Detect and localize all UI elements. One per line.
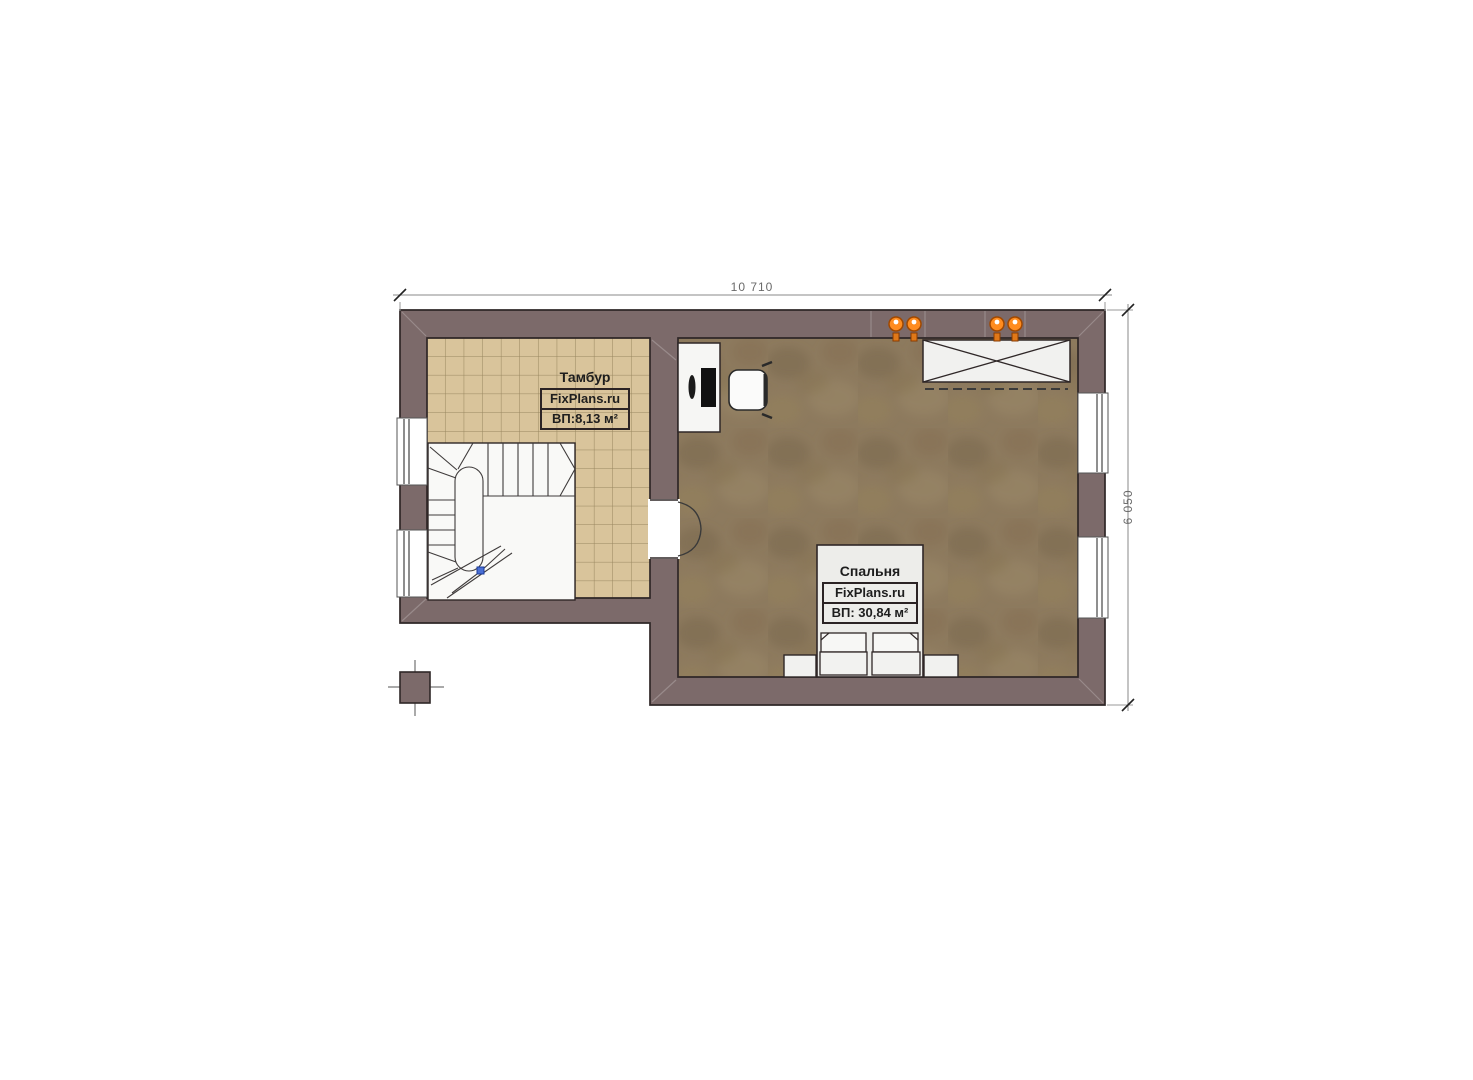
tambour-room-name: Тамбур: [525, 369, 645, 385]
desk-speaker: [689, 375, 696, 399]
window-left-lower: [397, 530, 427, 597]
window-left-upper: [397, 418, 427, 485]
bedroom-brand: FixPlans.ru: [824, 584, 917, 602]
tambour-info-box: FixPlans.ru ВП:8,13 м²: [540, 388, 630, 430]
dimension-right-value: 6 050: [1121, 476, 1135, 538]
tambour-brand: FixPlans.ru: [542, 390, 628, 408]
dimension-top-value: 10 710: [702, 280, 802, 294]
tambour-area: ВП:8,13 м²: [542, 408, 628, 428]
nightstand-right: [924, 655, 958, 677]
bedroom-area: ВП: 30,84 м²: [824, 602, 917, 622]
window-right-lower: [1078, 537, 1108, 618]
tambour-label: Тамбур FixPlans.ru ВП:8,13 м²: [525, 369, 645, 430]
column-marker: [388, 660, 444, 716]
bedroom-label: Спальня FixPlans.ru ВП: 30,84 м²: [810, 563, 930, 624]
monitor: [701, 368, 716, 407]
pillow-left: [821, 633, 866, 652]
wardrobe: [923, 340, 1070, 389]
pillow-right: [873, 633, 918, 652]
floor-plan-canvas: [0, 0, 1473, 1080]
desk: [678, 343, 720, 432]
stair-direction-marker: [477, 567, 484, 574]
staircase: [428, 443, 575, 600]
nightstand-left: [784, 655, 816, 677]
bedroom-room-name: Спальня: [810, 563, 930, 579]
window-right-upper: [1078, 393, 1108, 473]
bedroom-info-box: FixPlans.ru ВП: 30,84 м²: [822, 582, 919, 624]
